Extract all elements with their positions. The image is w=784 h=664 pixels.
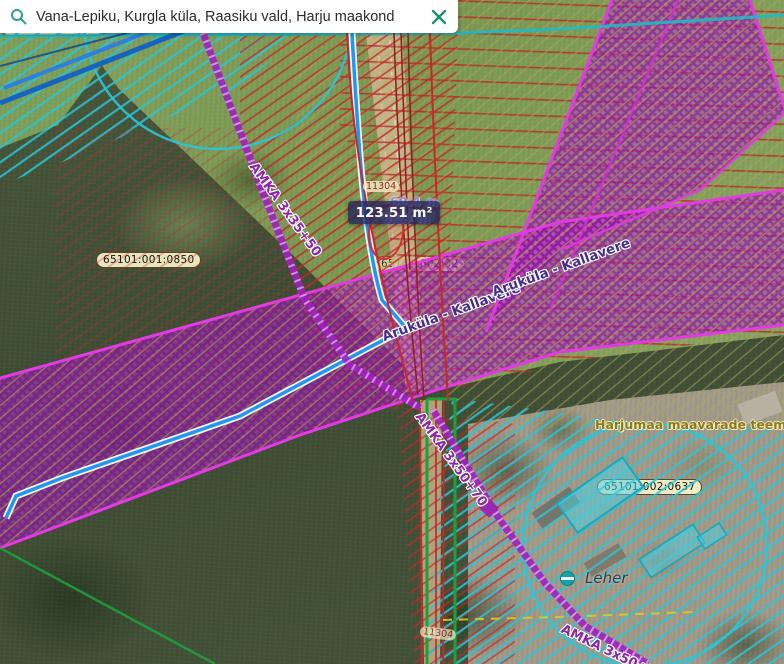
close-icon[interactable] — [430, 8, 448, 26]
poi-name-label: Leher — [585, 569, 628, 587]
search-input[interactable]: Vana-Lepiku, Kurgla küla, Raasiku vald, … — [36, 9, 430, 25]
area-value: 123.51 m² — [356, 205, 433, 221]
search-bar[interactable]: Vana-Lepiku, Kurgla küla, Raasiku vald, … — [0, 0, 458, 33]
cyan-zone-southeast — [425, 398, 784, 664]
poi-icon — [560, 571, 575, 586]
area-measurement-tooltip: 123.51 m² — [348, 201, 440, 224]
road-number-label-north: 11304 — [363, 181, 399, 192]
map-viewport[interactable]: 65101:001:0683 65101:001:0850 65101:002:… — [0, 0, 784, 664]
planning-theme-label: Harjumaa maavarade teemaplaneering — [595, 417, 784, 432]
search-icon — [10, 8, 27, 25]
